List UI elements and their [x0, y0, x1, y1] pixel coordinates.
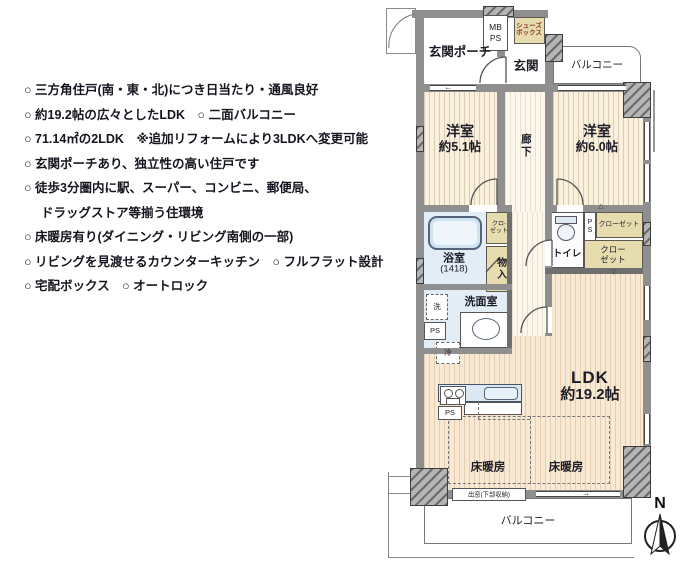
label-bedroom-2-name: 洋室	[576, 124, 618, 140]
building-outline	[388, 476, 410, 477]
feature-item-continuation: ドラッグストア等揃う住環境	[24, 201, 386, 226]
feature-item: ○ 約19.2帖の広々としたLDK ○ 二面バルコニー	[24, 103, 386, 128]
meter-box-label-mb: MB	[484, 22, 507, 33]
vent-mark: △	[598, 203, 603, 211]
wall	[416, 205, 512, 212]
feature-item: ○ 徒歩3分圏内に駅、スーパー、コンビニ、郵便局、	[24, 176, 386, 201]
label-closet-small: クロ- ゼット	[490, 221, 508, 234]
feature-item: ○ 71.14㎡の2LDK ※追加リフォームにより3LDKへ変更可能	[24, 127, 386, 152]
wall-pillar	[416, 258, 424, 284]
label-closet-small-line2: ゼット	[490, 228, 508, 235]
wall-pillar	[416, 126, 424, 152]
feature-item: ○ 宅配ボックス ○ オートロック	[24, 274, 386, 299]
feature-item: ○ 玄関ポーチあり、独立性の高い住戸です	[24, 152, 386, 177]
label-bedroom-2: 洋室 約6.0帖	[576, 124, 618, 154]
toilet-tank	[555, 216, 577, 224]
vent-mark: ▽	[611, 269, 616, 277]
label-closet-big: クロー ゼット	[600, 245, 626, 264]
label-bay-window: 出窓(下部収納)	[468, 491, 510, 498]
label-floor-heating-right: 床暖房	[549, 462, 584, 475]
listing-floorplan-image: ○ 三方角住戸(南・東・北)につき日当たり・通風良好 ○ 約19.2帖の広々とし…	[0, 0, 697, 562]
label-ps-kitchen: PS	[445, 409, 455, 417]
label-washer: 洗	[433, 303, 441, 311]
label-ps-top: P S	[588, 219, 593, 235]
meter-box-label-ps: PS	[484, 33, 507, 44]
label-floor-heating-left: 床暖房	[471, 462, 506, 475]
burner	[444, 389, 453, 398]
label-shoes-line2: ボックス	[516, 30, 542, 37]
label-bathroom: 浴室 (1418)	[440, 253, 467, 276]
door-gap	[557, 205, 583, 212]
label-corridor: 廊下	[519, 134, 531, 159]
label-washroom: 洗面室	[465, 296, 498, 308]
label-genkan: 玄関	[513, 59, 538, 73]
label-bedroom-1-size: 約5.1帖	[439, 140, 481, 154]
wall-pillar	[623, 82, 651, 118]
label-ps-left: PS	[430, 327, 440, 335]
label-porch: 玄関ポーチ	[429, 45, 492, 59]
floor-heating-divider	[530, 416, 531, 484]
feature-list: ○ 三方角住戸(南・東・北)につき日当たり・通風良好 ○ 約19.2帖の広々とし…	[24, 78, 386, 299]
window	[644, 414, 650, 444]
label-refrigerator: 冷	[444, 349, 452, 357]
wall-pillar	[623, 446, 651, 498]
bathtub-inner	[433, 221, 477, 245]
label-closet-horizontal: クローゼット	[599, 221, 640, 229]
label-ldk-size: 約19.2帖	[560, 387, 619, 404]
window	[644, 122, 650, 160]
label-shoes-box: シューズ ボックス	[516, 23, 542, 38]
window	[536, 491, 620, 497]
toilet-icon	[557, 224, 575, 241]
window	[430, 85, 476, 91]
burner	[455, 389, 464, 398]
compass-icon	[634, 512, 686, 562]
bathtub-icon	[428, 216, 482, 250]
wall-pillar	[643, 222, 651, 246]
door-gap	[545, 307, 552, 333]
label-closet-small-line1: クロ-	[490, 221, 508, 228]
window-arrow: →	[582, 490, 590, 499]
label-ldk-name: LDK	[560, 368, 619, 387]
label-bedroom-2-size: 約6.0帖	[576, 140, 618, 154]
label-ps-top-line2: S	[588, 227, 593, 235]
wall	[416, 284, 512, 290]
label-toilet: トイレ	[553, 250, 582, 261]
floor-plan: ← → △ ▽ MB PS N	[386, 6, 694, 562]
wall-pillar	[643, 336, 651, 362]
wall	[545, 91, 553, 205]
kitchen-sink-icon	[484, 387, 518, 400]
feature-item: ○ リビングを見渡せるカウンターキッチン ○ フルフラット設計	[24, 250, 386, 275]
label-ldk: LDK 約19.2帖	[560, 368, 619, 404]
stove-icon	[440, 386, 466, 405]
label-bathroom-size: (1418)	[440, 265, 467, 276]
room-corridor-lower	[512, 212, 545, 336]
window	[558, 85, 626, 91]
label-balcony-bottom: バルコニー	[501, 515, 556, 527]
window-arrow: ←	[444, 84, 452, 93]
building-outline	[388, 493, 410, 494]
window	[644, 164, 650, 202]
label-ps-top-line1: P	[588, 219, 593, 227]
wall-pillar	[545, 34, 563, 62]
label-bedroom-1-name: 洋室	[439, 124, 481, 140]
wall	[545, 62, 553, 86]
wall	[545, 268, 643, 274]
feature-item: ○ 三方角住戸(南・東・北)につき日当たり・通風良好	[24, 78, 386, 103]
wall	[416, 348, 512, 354]
label-monoire: 物入	[494, 257, 505, 281]
wall	[497, 91, 505, 205]
label-bedroom-1: 洋室 約5.1帖	[439, 124, 481, 154]
door-gap	[545, 240, 552, 266]
label-closet-big-line2: ゼット	[600, 255, 626, 265]
label-balcony-top: バルコニー	[571, 60, 623, 72]
wall-pillar	[410, 468, 448, 506]
grill	[446, 398, 460, 405]
sink-icon	[472, 318, 500, 340]
balcony-rail-line	[653, 90, 655, 152]
feature-item: ○ 床暖房有り(ダイニング・リビング南側の一部)	[24, 225, 386, 250]
window	[644, 286, 650, 320]
kitchen-dash	[478, 402, 530, 420]
compass-label-n: N	[654, 495, 666, 513]
door-gap	[469, 205, 497, 212]
